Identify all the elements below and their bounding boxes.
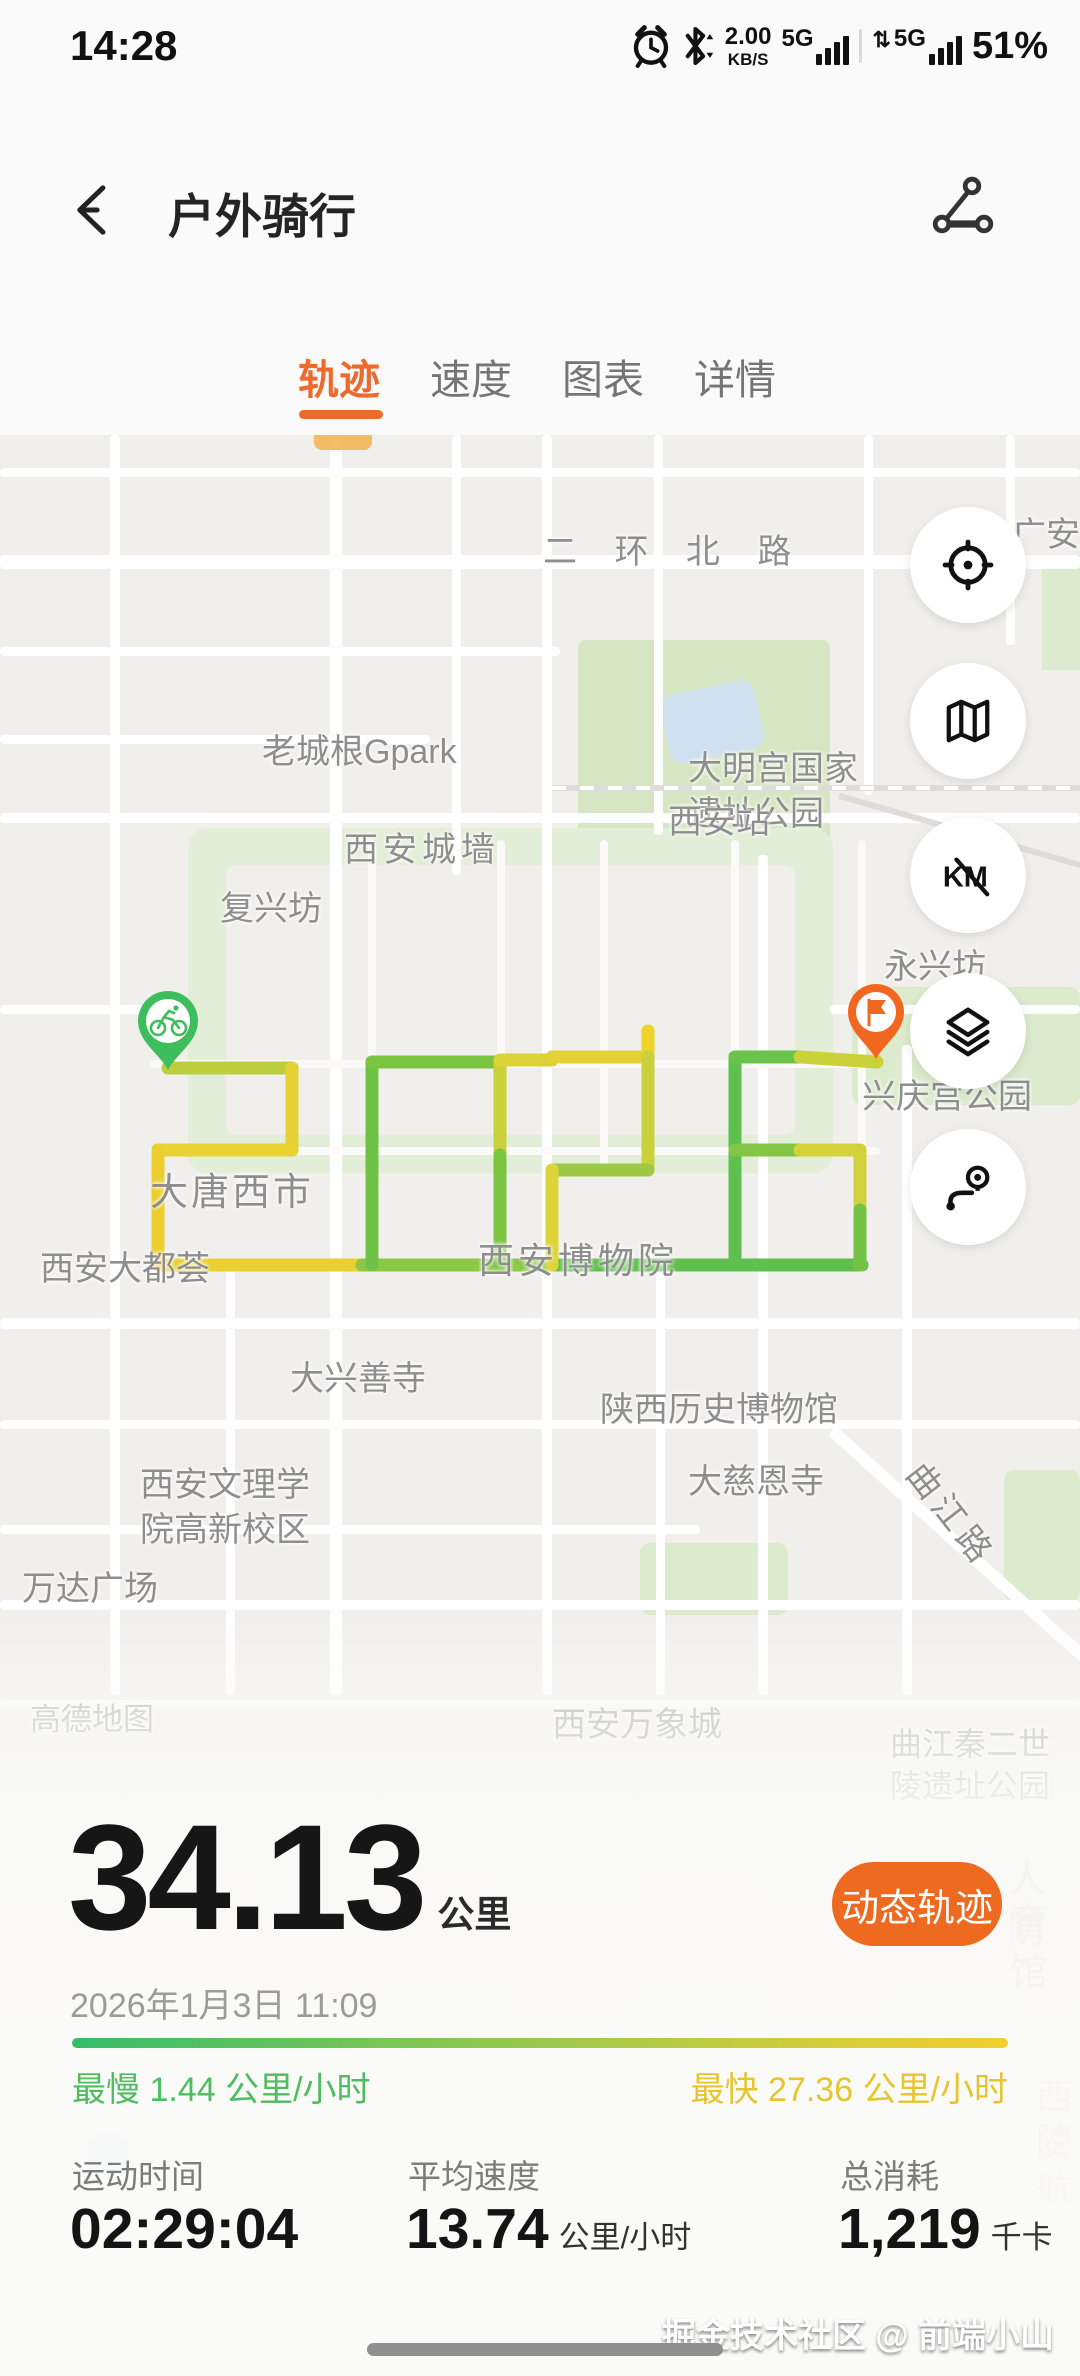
distance-unit: 公里 [437,1884,511,1938]
metric-value-duration: 02:29:04 [70,2196,298,2262]
map-label: 复兴坊 [220,887,322,932]
alarm-icon [631,24,671,68]
active-tab-underline [299,410,383,419]
page-title: 户外骑行 [168,178,356,247]
home-indicator[interactable] [367,2343,723,2356]
share-route-icon[interactable] [930,176,994,238]
tab-speed[interactable]: 速度 [430,346,512,406]
sim2-signal: ⇅ 5G [872,27,961,65]
map-label: 西安大都荟 [40,1247,210,1292]
data-updown-icon: ⇅ [872,27,890,53]
calories-unit: 千卡 [991,2212,1053,2257]
signal-bars-icon [929,36,962,65]
net-speed-unit: KB/S [728,51,769,68]
slowest-speed-label: 最慢 1.44 公里/小时 [72,2062,371,2111]
layers-button[interactable] [910,973,1026,1089]
end-marker-flag[interactable] [846,983,906,1061]
network-speed: 2.00 KB/S [725,25,772,68]
map-icon [943,696,993,746]
route-pin-icon [941,1160,995,1214]
avg-speed-unit: 公里/小时 [559,2212,692,2257]
speed-gradient-bar [72,2038,1008,2048]
status-time: 14:28 [70,22,177,70]
metric-label-calories: 总消耗 [840,2150,939,2198]
route-preview-button[interactable] [910,1129,1026,1245]
battery-percent: 51% [972,25,1048,68]
duration-value: 02:29:04 [70,2196,298,2262]
fastest-speed-label: 最快 27.36 公里/小时 [691,2062,1008,2111]
sim1-label: 5G [781,27,813,51]
status-divider [859,29,862,63]
avg-speed-value: 13.74 [406,2196,549,2262]
dynamic-track-button[interactable]: 动态轨迹 [832,1862,1002,1946]
map-label: 大唐西市 [150,1168,314,1218]
tab-chart[interactable]: 图表 [562,346,644,406]
crosshair-icon [942,539,994,591]
bluetooth-icon [681,23,715,69]
metric-value-avg-speed: 13.74 公里/小时 [406,2196,691,2262]
locate-button[interactable] [910,507,1026,623]
metric-label-duration: 运动时间 [72,2150,204,2198]
map-label: 西安博物院 [478,1237,678,1285]
calories-value: 1,219 [838,2196,981,2262]
sim1-signal: 5G [781,27,849,65]
km-scale-button[interactable]: KM [910,817,1026,933]
sim2-label: 5G [894,27,926,51]
map-label: 陕西历史博物馆 [600,1388,838,1433]
start-marker-bicycle[interactable] [136,990,200,1072]
layers-icon [941,1004,995,1058]
map-label: 西安城墙 [344,828,500,873]
distance-value: 34.13 [68,1802,423,1952]
distance-block: 34.13 公里 [68,1802,511,1952]
map-label: 西安文理学院高新校区 [140,1463,326,1553]
app-screen: 14:28 2.00 KB/S 5G ⇅ 5G [0,0,1080,2376]
back-button[interactable] [72,184,130,236]
map-label: 西安站 [668,800,770,845]
map-label: 老城根Gpark [262,730,457,775]
map-label: 二 环 北 路 [543,530,805,575]
activity-datetime: 2026年1月3日 11:09 [70,1978,377,2027]
map-label: 大慈恩寺 [688,1460,824,1505]
map-label: 大兴善寺 [290,1357,426,1402]
map-mode-button[interactable] [910,663,1026,779]
km-icon: KM [941,848,995,902]
metric-value-calories: 1,219 千卡 [838,2196,1053,2262]
tab-detail[interactable]: 详情 [694,346,776,406]
map-label: 万达广场 [22,1567,158,1612]
signal-bars-icon [816,36,849,65]
metric-label-avg-speed: 平均速度 [408,2150,540,2198]
tab-track[interactable]: 轨迹 [298,346,380,406]
net-speed-value: 2.00 [725,25,772,49]
status-icons: 2.00 KB/S 5G ⇅ 5G 51% [631,18,1048,74]
